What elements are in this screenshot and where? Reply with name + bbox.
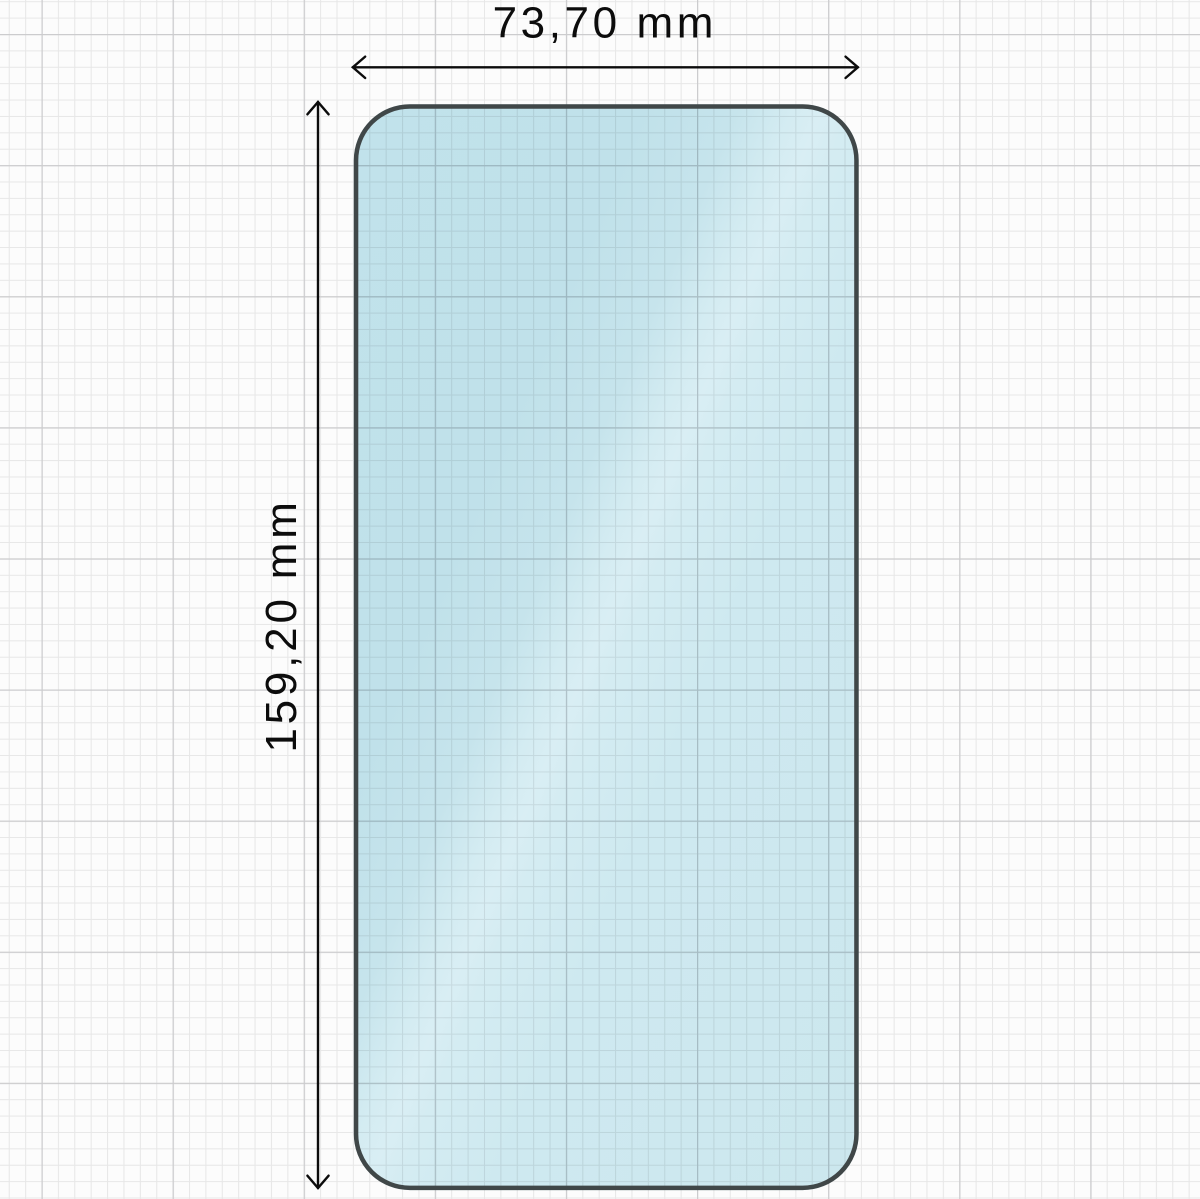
svg-text:159,20 mm: 159,20 mm xyxy=(257,498,306,752)
svg-text:73,70 mm: 73,70 mm xyxy=(493,0,717,47)
